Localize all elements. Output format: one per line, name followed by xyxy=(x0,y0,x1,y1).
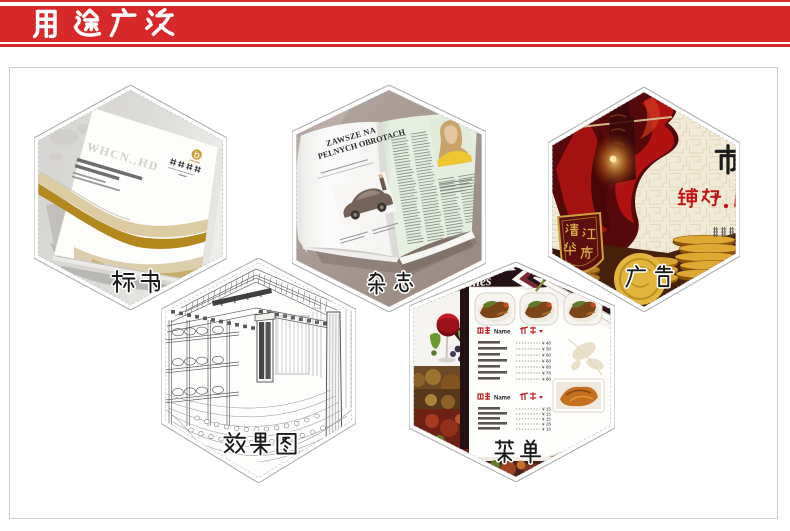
svg-text:¥ 68: ¥ 68 xyxy=(542,364,551,369)
svg-text:¥ 68: ¥ 68 xyxy=(542,352,551,357)
svg-text:Name: Name xyxy=(494,330,511,336)
svg-text:¥ 68: ¥ 68 xyxy=(542,358,551,363)
svg-text:¥ 88: ¥ 88 xyxy=(542,376,551,381)
svg-text:¥ 18: ¥ 18 xyxy=(542,426,551,431)
svg-text:Name: Name xyxy=(494,396,511,402)
svg-text:¥ 58: ¥ 58 xyxy=(542,346,551,351)
svg-text:¥ 48: ¥ 48 xyxy=(542,340,551,345)
svg-text:¥ 78: ¥ 78 xyxy=(542,370,551,375)
